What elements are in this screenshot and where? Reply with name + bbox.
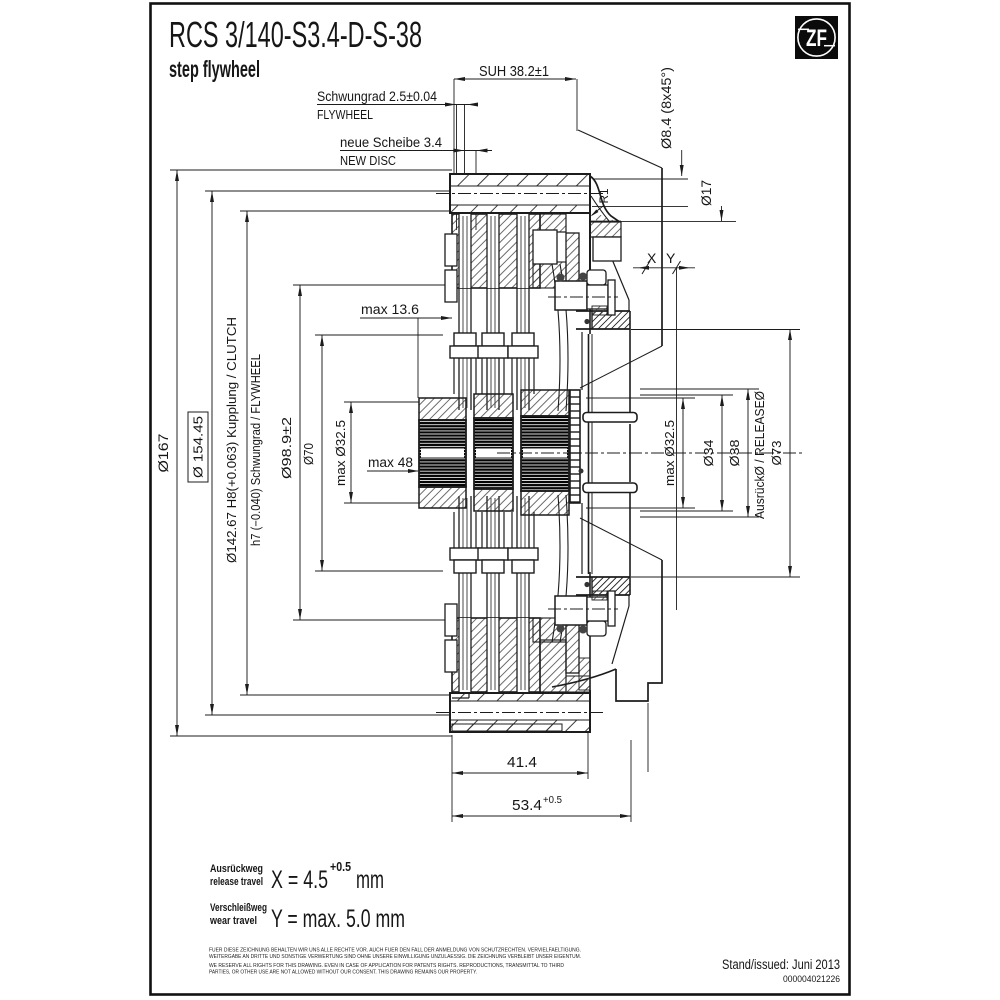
- svg-text:Ø98.9±2: Ø98.9±2: [279, 417, 294, 479]
- svg-text:mm: mm: [356, 866, 384, 894]
- svg-text:NEW DISC: NEW DISC: [340, 153, 396, 168]
- svg-text:000004021226: 000004021226: [783, 974, 840, 985]
- svg-text:SUH 38.2±1: SUH 38.2±1: [479, 63, 549, 80]
- svg-text:Ø8.4 (8x45°): Ø8.4 (8x45°): [659, 67, 674, 149]
- svg-text:max 13.6: max 13.6: [361, 302, 419, 317]
- svg-text:ZF: ZF: [806, 25, 827, 52]
- svg-text:PARTIES, OR OTHER USE ARE NOT: PARTIES, OR OTHER USE ARE NOT ALLOWED WI…: [209, 970, 477, 976]
- svg-text:h7 (−0.040) Schwungrad / FLYWH: h7 (−0.040) Schwungrad / FLYWHEEL: [249, 354, 263, 546]
- svg-text:Ø17: Ø17: [699, 180, 714, 206]
- svg-text:53.4: 53.4: [512, 797, 542, 814]
- svg-text:+0.5: +0.5: [330, 859, 351, 874]
- svg-text:Stand/issued: Juni 2013: Stand/issued: Juni 2013: [722, 957, 840, 972]
- svg-text:Ø142.67 H8(+0.063) Kupplung /: Ø142.67 H8(+0.063) Kupplung / CLUTCH: [225, 317, 239, 563]
- svg-text:max 48: max 48: [368, 455, 413, 470]
- svg-text:Y: Y: [666, 250, 676, 266]
- svg-text:max Ø32.5: max Ø32.5: [333, 420, 348, 486]
- svg-text:X = 4.5: X = 4.5: [271, 866, 328, 894]
- svg-text:step flywheel: step flywheel: [169, 56, 260, 82]
- svg-text:Ø 154.45: Ø 154.45: [191, 416, 206, 478]
- svg-text:WEITERGABE AN DRITTE UND SONST: WEITERGABE AN DRITTE UND SONSTIGE VERWER…: [209, 954, 581, 960]
- svg-text:Schwungrad 2.5±0.04: Schwungrad 2.5±0.04: [317, 89, 437, 104]
- svg-text:+0.5: +0.5: [543, 795, 562, 806]
- svg-text:Ø167: Ø167: [156, 434, 171, 473]
- svg-text:release travel: release travel: [210, 876, 263, 888]
- svg-text:Ausrückweg: Ausrückweg: [210, 863, 263, 875]
- svg-text:Y = max. 5.0 mm: Y = max. 5.0 mm: [271, 905, 405, 933]
- svg-text:neue Scheibe 3.4: neue Scheibe 3.4: [340, 135, 442, 150]
- svg-text:FUER DIESE ZEICHNUNG BEHALTEN: FUER DIESE ZEICHNUNG BEHALTEN WIR UNS AL…: [209, 948, 581, 954]
- svg-text:WE RESERVE ALL RIGHTS FOR THIS: WE RESERVE ALL RIGHTS FOR THIS DRAWING. …: [209, 963, 564, 969]
- svg-text:Verschleißweg: Verschleißweg: [210, 902, 267, 914]
- svg-text:wear travel: wear travel: [209, 915, 257, 927]
- svg-text:41.4: 41.4: [507, 754, 537, 771]
- svg-text:R1: R1: [597, 188, 611, 203]
- svg-text:Ø70: Ø70: [301, 443, 316, 465]
- svg-text:AusrückØ / RELEASEØ: AusrückØ / RELEASEØ: [753, 391, 767, 519]
- svg-text:FLYWHEEL: FLYWHEEL: [317, 107, 373, 122]
- svg-text:RCS 3/140-S3.4-D-S-38: RCS 3/140-S3.4-D-S-38: [169, 14, 422, 55]
